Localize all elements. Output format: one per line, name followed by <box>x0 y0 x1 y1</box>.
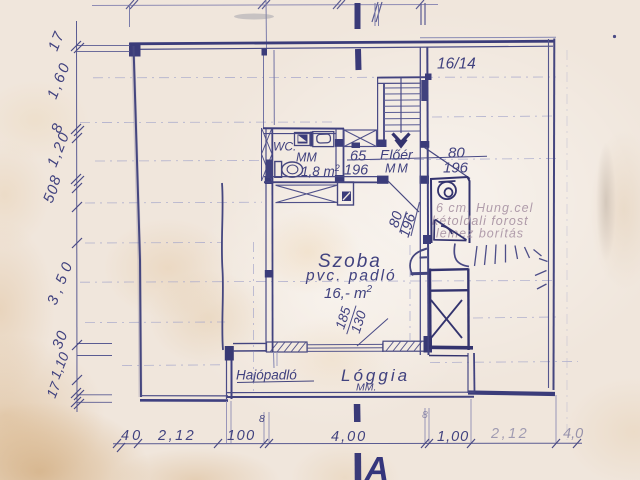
svg-text:17: 17 <box>45 28 69 54</box>
svg-text:2,12: 2,12 <box>157 428 196 444</box>
svg-text:40: 40 <box>121 428 143 444</box>
svg-text:1,60: 1,60 <box>44 59 74 102</box>
svg-text:1,8 m2: 1,8 m2 <box>301 163 340 179</box>
svg-text:MM: MM <box>296 151 317 165</box>
svg-text:30: 30 <box>49 328 72 352</box>
svg-text:6 cm. Hung.cel: 6 cm. Hung.cel <box>436 201 534 215</box>
svg-text:16/14: 16/14 <box>437 56 476 73</box>
svg-text:8: 8 <box>259 413 265 425</box>
svg-text:Előér: Előér <box>380 147 414 163</box>
svg-text:Hajópadló: Hajópadló <box>236 368 297 383</box>
svg-text:1,00: 1,00 <box>437 429 469 445</box>
svg-text:A: A <box>364 450 389 480</box>
svg-text:MM.: MM. <box>356 382 376 394</box>
svg-text:4,00: 4,00 <box>331 429 367 445</box>
svg-text:3,50: 3,50 <box>44 256 78 308</box>
svg-text:8: 8 <box>422 409 428 421</box>
svg-text:1,20: 1,20 <box>44 129 74 170</box>
svg-text:4,0: 4,0 <box>563 426 583 442</box>
svg-text:pvc. padló: pvc. padló <box>305 268 397 285</box>
svg-text:WC.: WC. <box>273 140 296 154</box>
svg-text:1,10: 1,10 <box>47 350 72 381</box>
svg-text:16,- m2: 16,- m2 <box>324 284 373 302</box>
svg-text:MM: MM <box>385 162 410 176</box>
svg-text:100: 100 <box>227 428 256 444</box>
svg-text:2,12: 2,12 <box>490 426 529 442</box>
svg-text:196: 196 <box>344 163 369 179</box>
